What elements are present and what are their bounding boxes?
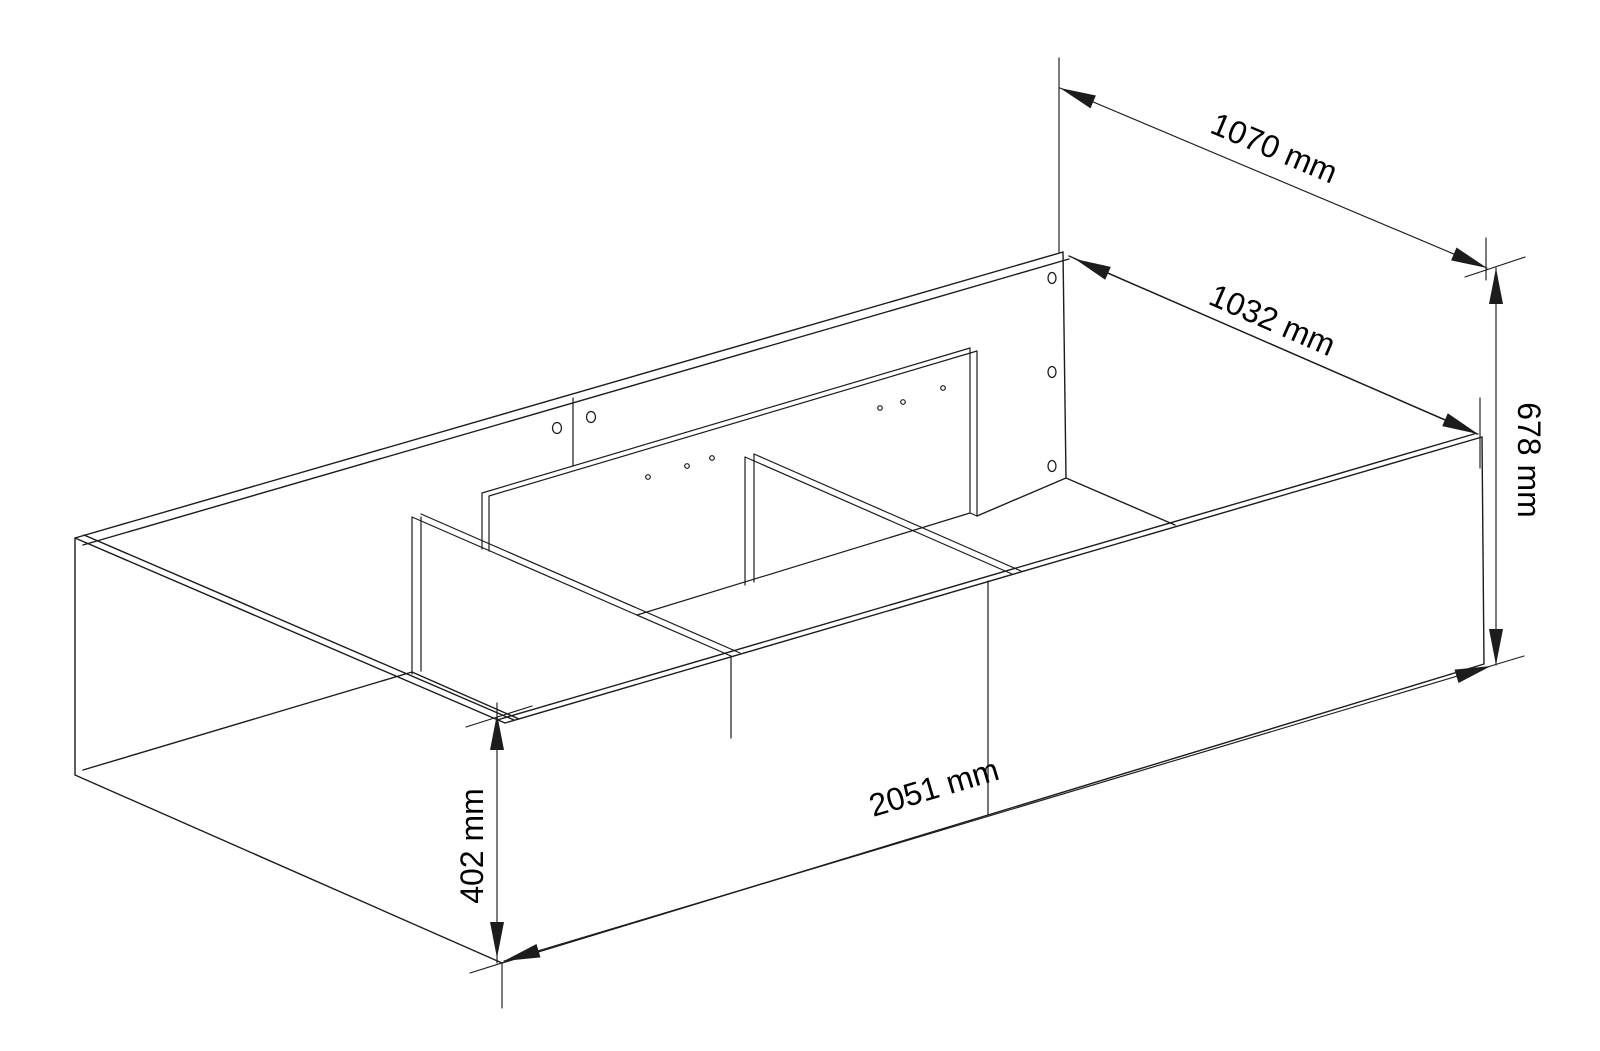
technical-drawing-page: 1070 mm 1032 mm 678 mm 2051 mm (0, 0, 1600, 1051)
dim-arrow (1442, 413, 1478, 434)
edge-hole (1048, 461, 1056, 472)
dim-arrow (1075, 259, 1111, 280)
isometric-bed-frame-drawing: 1070 mm 1032 mm 678 mm 2051 mm (0, 0, 1600, 1051)
dim-arrow (1489, 629, 1503, 665)
pilot-hole (878, 406, 883, 411)
dim-arrow (504, 944, 541, 961)
joint-hole (553, 423, 562, 434)
interior-structure (412, 273, 1056, 815)
pilot-hole (685, 464, 690, 469)
dim-arrow (1455, 666, 1492, 683)
dim-label-402: 402 mm (454, 788, 490, 904)
pilot-hole (941, 386, 946, 391)
pilot-hole (901, 400, 906, 405)
dimension-height-back: 678 mm (1465, 257, 1547, 665)
divider-panel-edges (412, 454, 1021, 738)
dim-arrow (1060, 88, 1096, 108)
back-panel-holes (553, 273, 1057, 472)
dim-label-1032: 1032 mm (1204, 277, 1341, 363)
dim-1032-lines (1075, 259, 1480, 468)
slat-rail-edges (482, 348, 977, 615)
dimension-length-overall: 2051 mm (470, 656, 1524, 1008)
dim-label-678: 678 mm (1511, 402, 1547, 518)
pilot-hole (710, 456, 715, 461)
edge-hole (1048, 367, 1056, 378)
dim-arrow (490, 922, 504, 958)
dim-arrow (1451, 248, 1487, 269)
dim-label-2051: 2051 mm (865, 751, 1003, 824)
dimension-height-front: 402 mm (454, 703, 532, 963)
dim-1070-lines (1059, 58, 1487, 280)
edge-hole (1048, 273, 1056, 284)
joint-hole (587, 412, 596, 423)
dimension-depth-inner: 1032 mm (1075, 259, 1480, 468)
dim-arrow (490, 714, 504, 750)
dim-label-1070: 1070 mm (1206, 105, 1343, 190)
outer-box-edges (75, 252, 1484, 963)
pilot-hole (646, 475, 651, 480)
panel-joint-lines (573, 398, 988, 814)
furniture-outline (75, 252, 1484, 963)
dimension-depth-overall: 1070 mm (1059, 58, 1487, 280)
dim-arrow (1489, 268, 1503, 304)
dim-2051-lines (470, 656, 1524, 1008)
